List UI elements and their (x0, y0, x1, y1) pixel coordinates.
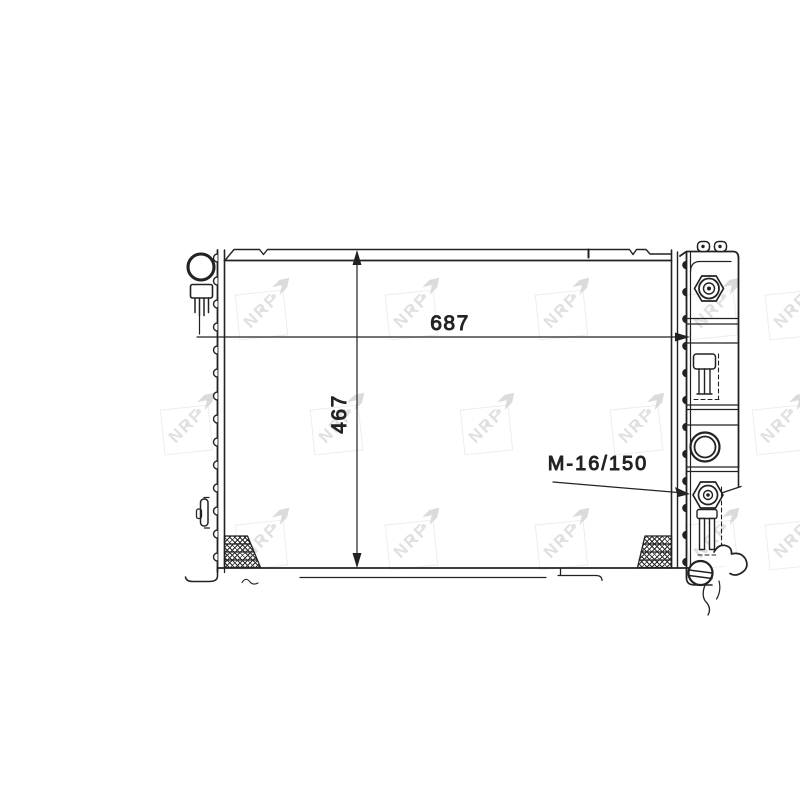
tank-top-tabs (698, 242, 727, 252)
fin-block-outlines (225, 536, 672, 568)
dimension-width-label: 687 (430, 312, 470, 335)
drain-plug (689, 561, 713, 585)
arrowhead-down (353, 553, 362, 568)
upper-mounting-bracket (191, 285, 213, 335)
hose-port (691, 433, 720, 462)
mounting-hole (188, 254, 214, 280)
upper-hex-plug (695, 276, 724, 301)
thread-spec-label: M-16/150 (548, 453, 649, 475)
drip-line (717, 581, 720, 599)
mid-clip-bracket (694, 354, 721, 400)
thread-spec-callout: M-16/150 (548, 453, 690, 497)
drip-line (703, 585, 709, 615)
lower-mounting-bracket (197, 498, 210, 529)
radiator-line-art: 687 467 M-16/150 (0, 0, 800, 800)
dimension-height: 467 (328, 250, 362, 568)
arrowhead-up (353, 250, 362, 265)
right-tank (680, 242, 747, 616)
radiator-technical-drawing: NRFNRFNRFNRFNRFNRFNRFNRFNRFNRFNRFNRFNRFN… (0, 0, 800, 800)
mounting-hook (714, 545, 747, 575)
side-plate-left-details (188, 254, 214, 528)
radiator-core-outline (186, 250, 691, 585)
arrowhead-right (675, 333, 690, 342)
dimension-height-label: 467 (328, 394, 351, 434)
dimension-width: 687 (197, 312, 690, 342)
thread-hex-plug (693, 468, 741, 508)
